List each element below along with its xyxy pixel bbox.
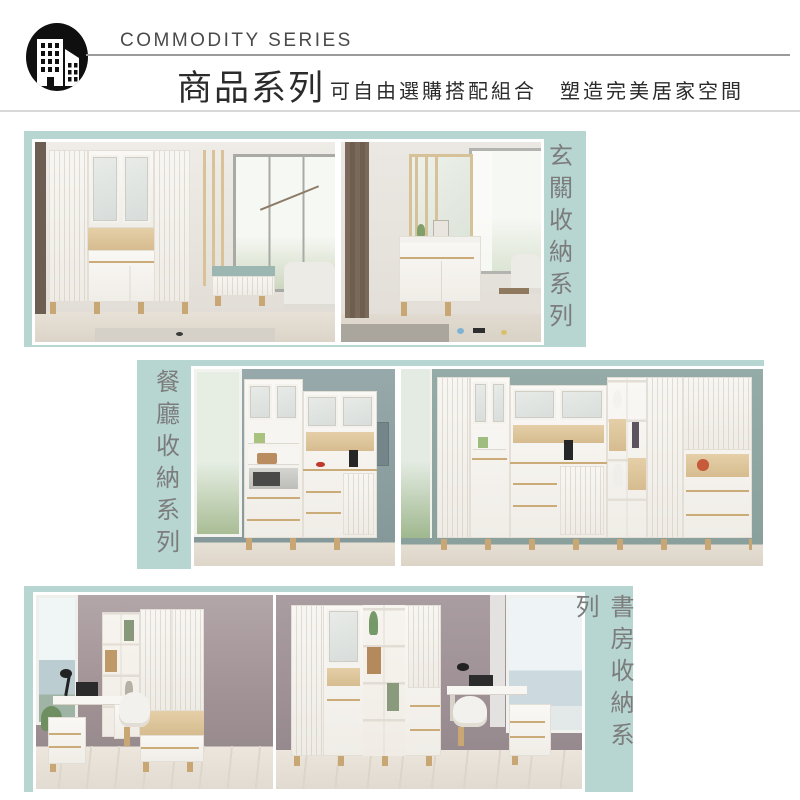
wardrobe-doors: [140, 609, 204, 712]
hutch-left: [244, 379, 302, 539]
open-niche: [327, 668, 360, 686]
glass-slider: [513, 389, 557, 420]
glass-door: [491, 382, 506, 424]
desk-lamp: [457, 663, 469, 671]
striped-panel: [154, 150, 190, 302]
sofa: [284, 262, 335, 310]
shoe-cabinet: [399, 236, 481, 302]
curtain: [490, 595, 505, 727]
drawer-trim: [472, 458, 507, 460]
study-scene-1: [36, 595, 273, 789]
window: [36, 595, 78, 725]
ball-decor: [501, 330, 507, 335]
drawer-unit: [48, 717, 86, 764]
header-rule: [86, 54, 790, 56]
desk-chair: [119, 692, 150, 727]
chair-legs: [458, 727, 482, 746]
drawer-trim: [513, 483, 558, 485]
section-label-study: 書房收納系列: [574, 594, 630, 784]
bookcase-legs: [294, 756, 438, 766]
bench-base: [212, 276, 275, 296]
fruit-decor: [697, 459, 709, 470]
photo-dining-wall-unit: [398, 366, 766, 569]
drawer-trim: [306, 512, 342, 514]
fruit-plate: [316, 462, 325, 468]
bench-legs: [215, 296, 272, 306]
toaster-shelf: [248, 447, 299, 465]
series-subtitle: 可自由選購搭配組合 塑造完美居家空間: [330, 75, 744, 104]
coffee-table: [499, 288, 529, 294]
cabinet-legs: [401, 302, 479, 316]
study-scene-2: [276, 595, 582, 789]
plant-decor: [369, 611, 378, 635]
photo-study-desk-combo: [33, 592, 276, 792]
center-hutch: [510, 385, 608, 539]
laptop: [76, 682, 97, 696]
glass-display-cabinet: [88, 150, 154, 228]
window: [194, 369, 242, 537]
striped-door: [291, 605, 324, 756]
drawer-trim: [410, 729, 440, 731]
cabinet-legs: [246, 538, 375, 550]
rug: [95, 328, 275, 342]
open-niche: [306, 432, 374, 451]
microwave: [249, 468, 298, 489]
jug-decor: [632, 422, 639, 448]
striped-door: [683, 377, 752, 450]
bench-cushion: [212, 266, 275, 276]
bookcase-legs: [143, 762, 202, 772]
ball-decor: [457, 328, 464, 334]
dining-scene-1: [194, 369, 395, 566]
photo-entryway-combo: [32, 139, 338, 345]
series-title-zh: 商品系列: [177, 60, 325, 111]
cabinet-legs: [50, 302, 191, 314]
section-label-dining: 餐廳收納系列: [139, 368, 191, 561]
cabinet-legs: [441, 539, 752, 550]
glass-slider: [306, 395, 339, 428]
striped-door: [408, 605, 441, 688]
drawer-trim: [306, 491, 342, 493]
window: [401, 369, 432, 538]
buildings-logo-icon: [26, 23, 88, 91]
header-divider: [0, 110, 800, 112]
dish-shelf: [473, 430, 506, 449]
books-decor: [367, 647, 381, 674]
drawer-unit-legs: [50, 764, 83, 773]
books-decor: [387, 683, 400, 710]
section-label-entryway: 玄關收納系列: [529, 143, 587, 335]
tall-striped-cabinet: [647, 377, 683, 539]
drawer-trim: [686, 514, 749, 516]
chair-legs: [124, 727, 145, 746]
mat-decor: [473, 328, 485, 333]
glass-door: [248, 384, 271, 421]
bookcase-wall-unit: [291, 605, 441, 756]
glass-slider: [341, 395, 374, 428]
plant-decor: [417, 224, 425, 236]
glass-door: [275, 384, 298, 421]
books-decor: [105, 650, 116, 672]
hutch-right: [303, 391, 377, 539]
laptop: [469, 675, 493, 687]
tall-striped-cabinet: [437, 377, 470, 539]
entryway-scene-1: [35, 142, 335, 342]
decor-object: [176, 332, 183, 336]
drawer-trim: [686, 490, 749, 492]
toaster-decor: [257, 453, 278, 464]
wood-wall: [345, 142, 369, 318]
drawer-trim: [513, 505, 558, 507]
microwave-window: [253, 472, 280, 486]
drawer-trim: [247, 519, 299, 521]
wood-cell: [609, 419, 627, 451]
books-decor: [124, 620, 134, 641]
kettle-decor: [613, 464, 623, 487]
entryway-scene-2: [341, 142, 541, 342]
coffee-machine: [564, 440, 573, 460]
product-series-page: COMMODITY SERIES 商品系列 可自由選購搭配組合 塑造完美居家空間: [0, 0, 800, 800]
glass-door: [91, 155, 118, 222]
open-niche: [686, 454, 749, 477]
dining-scene-2: [401, 369, 763, 566]
section-study: 書房收納系列: [24, 586, 633, 792]
section-entryway: 玄關收納系列: [24, 131, 586, 347]
glass-door: [473, 382, 488, 424]
drawer-trim: [247, 497, 299, 499]
drawer-trim: [410, 705, 440, 707]
photo-dining-hutch: [191, 366, 398, 569]
open-niche-band: [140, 711, 204, 734]
coffee-machine: [349, 450, 358, 468]
section-dining: 餐廳收納系列: [137, 360, 764, 569]
rug: [341, 324, 449, 342]
glass-door: [123, 155, 150, 222]
glass-door: [327, 609, 360, 663]
open-niche: [513, 425, 605, 443]
tall-cabinet: [49, 150, 88, 302]
dish-shelf: [248, 427, 299, 445]
counter-trim: [303, 469, 377, 471]
desk-top: [447, 686, 527, 694]
lower-drawers: [140, 735, 204, 762]
striped-door: [343, 473, 373, 535]
side-cabinet: [683, 377, 752, 539]
glass-slider: [560, 389, 604, 420]
door-frame: [35, 142, 46, 314]
tree-branch: [260, 185, 319, 211]
open-shelves: [363, 605, 405, 756]
wood-cell: [628, 458, 646, 490]
glass-cabinet: [470, 377, 510, 539]
series-title-en: COMMODITY SERIES: [120, 30, 353, 52]
counter-trim: [510, 462, 608, 464]
teapot-decor: [613, 390, 623, 409]
drawer-trim: [327, 699, 360, 701]
desk-chair: [453, 696, 487, 727]
drawer-unit: [509, 704, 552, 756]
striped-door: [560, 466, 604, 535]
drawer-unit-legs: [512, 756, 549, 765]
open-niche: [88, 228, 154, 250]
desk-top: [53, 696, 126, 704]
cup-decor: [478, 437, 487, 448]
dish-decor: [254, 433, 265, 443]
photo-study-bookcase-wall: [273, 592, 585, 792]
open-shelf-column: [607, 377, 647, 539]
photo-entryway-shoe-cabinet: [338, 139, 544, 345]
